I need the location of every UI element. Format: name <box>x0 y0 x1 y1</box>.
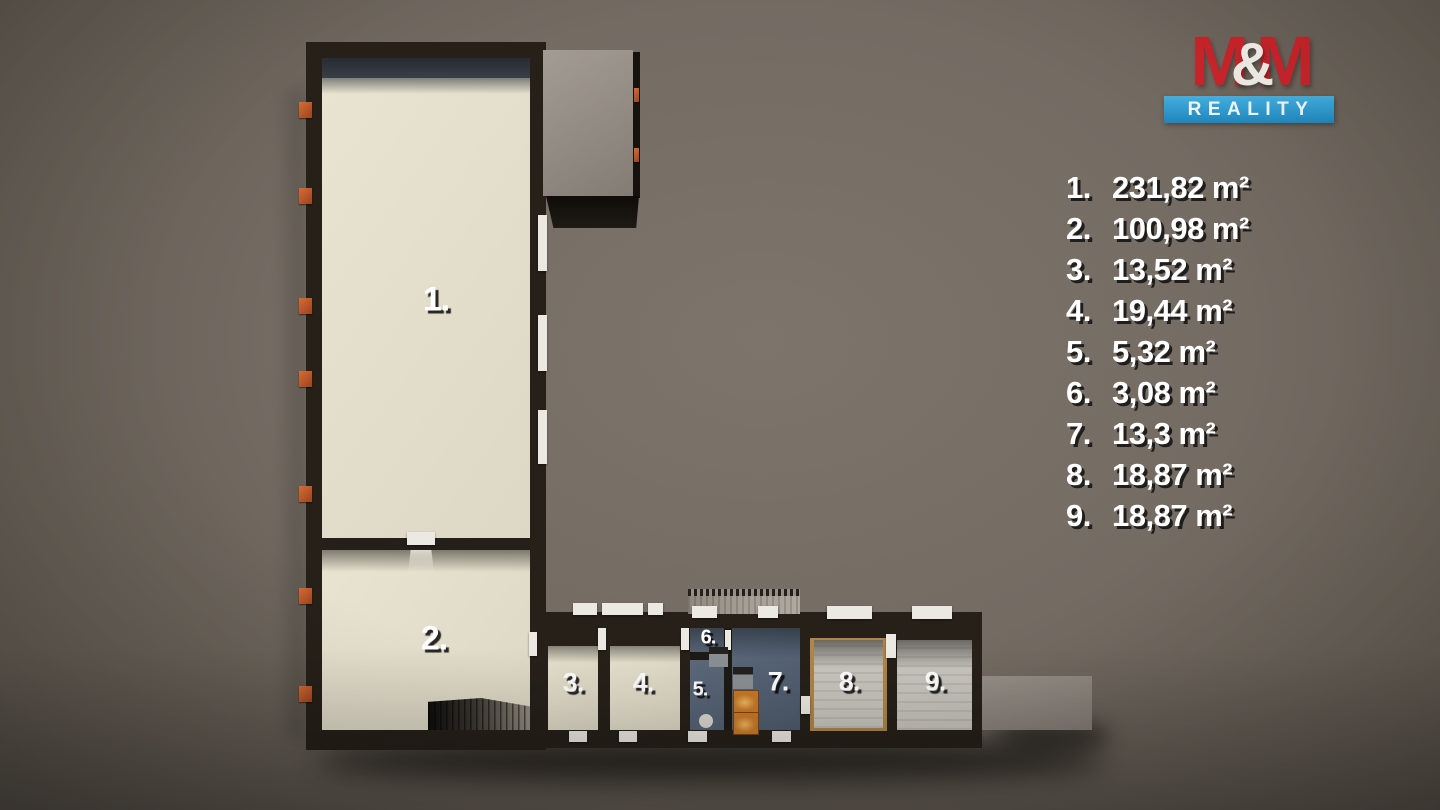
sink-room7 <box>733 667 753 689</box>
annex-window-orange <box>634 148 639 162</box>
legend-row-8: 8.18,87 m² <box>1066 454 1249 495</box>
window-marker-white <box>538 215 547 271</box>
legend-num: 7. <box>1066 413 1108 454</box>
room-label-8: 8. <box>839 667 860 698</box>
door-marker-room1-room2 <box>407 532 435 545</box>
toilet <box>699 714 713 728</box>
window-marker-white <box>538 315 547 371</box>
room-label-1: 1. <box>423 281 449 320</box>
room-label-2: 2. <box>421 620 447 659</box>
legend-num: 6. <box>1066 372 1108 413</box>
annex-top-front-face <box>546 196 639 228</box>
legend-row-3: 3.13,52 m² <box>1066 249 1249 290</box>
window-marker-white <box>573 603 597 615</box>
mm-reality-logo: M&M REALITY <box>1164 30 1334 123</box>
legend-num: 2. <box>1066 208 1108 249</box>
annex-window-orange <box>634 88 639 102</box>
legend-area: 18,87 m² <box>1112 454 1249 495</box>
room-label-3: 3. <box>563 668 584 699</box>
room-1-floor-inner-shadow <box>322 78 530 94</box>
window-marker-orange <box>299 486 312 502</box>
window-marker-orange <box>299 298 312 314</box>
legend-area: 13,52 m² <box>1112 249 1249 290</box>
legend-num: 5. <box>1066 331 1108 372</box>
threshold-marker <box>569 731 587 742</box>
urinal-fixture <box>733 712 759 735</box>
legend-num: 8. <box>1066 454 1108 495</box>
window-marker-white <box>758 606 778 618</box>
legend-num: 9. <box>1066 495 1108 536</box>
legend-row-4: 4.19,44 m² <box>1066 290 1249 331</box>
annex-bottom-roof <box>982 676 1092 730</box>
room-1-ceiling-shadow-band <box>322 58 530 78</box>
legend-area: 13,3 m² <box>1112 413 1249 454</box>
canopy-roof-teeth <box>688 589 800 596</box>
window-marker-orange <box>299 371 312 387</box>
window-marker-orange <box>299 686 312 702</box>
legend-num: 1. <box>1066 167 1108 208</box>
logo-ampersand: & <box>1231 31 1267 98</box>
window-marker-white <box>912 606 952 619</box>
legend-area: 19,44 m² <box>1112 290 1249 331</box>
window-marker-white <box>538 410 547 464</box>
room-label-6: 6. <box>701 627 716 650</box>
legend-area: 5,32 m² <box>1112 331 1249 372</box>
logo-mm-wordmark: M&M <box>1164 30 1334 94</box>
legend-row-2: 2.100,98 m² <box>1066 208 1249 249</box>
annex-top-roof <box>543 50 633 196</box>
room-label-7: 7. <box>768 667 789 698</box>
logo-reality-banner: REALITY <box>1164 96 1334 123</box>
legend-row-6: 6.3,08 m² <box>1066 372 1249 413</box>
room-label-9: 9. <box>925 667 946 698</box>
door-light-spill <box>408 550 434 574</box>
room-label-4: 4. <box>633 668 654 699</box>
threshold-marker <box>619 731 637 742</box>
sink-room6 <box>709 647 728 667</box>
legend-area: 3,08 m² <box>1112 372 1249 413</box>
urinal-fixture <box>733 690 759 713</box>
threshold-marker <box>772 731 791 742</box>
door-marker-4-5 <box>681 628 689 650</box>
legend-row-5: 5.5,32 m² <box>1066 331 1249 372</box>
door-marker-7-8 <box>801 696 810 714</box>
door-marker-8-9 <box>886 634 896 658</box>
window-marker-white <box>827 606 872 619</box>
legend-row-9: 9.18,87 m² <box>1066 495 1249 536</box>
door-marker-3-4 <box>598 628 606 650</box>
threshold-marker <box>688 731 707 742</box>
room-label-5: 5. <box>693 679 708 702</box>
window-marker-orange <box>299 588 312 604</box>
floorplan-render-scene: 1. 2. 3. 4. 5. 6. 7. 8. 9. M&M REALITY 1… <box>0 0 1440 810</box>
legend-row-7: 7.13,3 m² <box>1066 413 1249 454</box>
legend-area: 231,82 m² <box>1112 167 1249 208</box>
window-marker-white <box>602 603 643 615</box>
window-marker-white <box>692 606 717 618</box>
legend-num: 4. <box>1066 290 1108 331</box>
legend-area: 100,98 m² <box>1112 208 1249 249</box>
legend-area: 18,87 m² <box>1112 495 1249 536</box>
legend-row-1: 1.231,82 m² <box>1066 167 1249 208</box>
window-marker-white <box>648 603 663 615</box>
area-legend: 1.231,82 m² 2.100,98 m² 3.13,52 m² 4.19,… <box>1066 167 1249 536</box>
window-marker-orange <box>299 102 312 118</box>
legend-num: 3. <box>1066 249 1108 290</box>
window-marker-orange <box>299 188 312 204</box>
annex-top-side <box>633 52 640 198</box>
door-marker-room3 <box>529 632 537 656</box>
